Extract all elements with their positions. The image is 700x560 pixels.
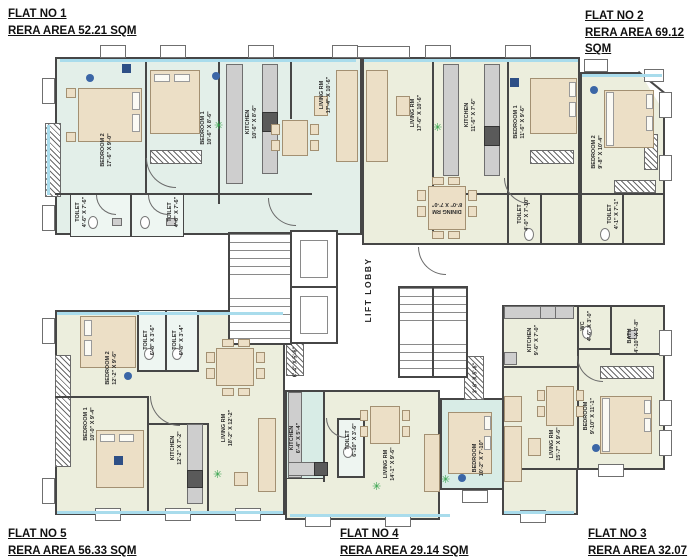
pillow: [646, 116, 653, 131]
room-label: BEDROOM 217'-6" X 9'-0": [100, 133, 114, 167]
window: [425, 45, 451, 58]
window-accent-strip: [60, 59, 356, 62]
wardrobe-hatch: [600, 366, 654, 379]
plant-icon: ✳: [372, 482, 381, 493]
chair: [432, 231, 444, 239]
dining-table: [216, 348, 254, 386]
flat-area: RERA AREA 56.33 SQM: [8, 543, 136, 560]
sink: [540, 306, 556, 319]
room-label: BEDROOM9'-10" X 11'-1": [583, 398, 597, 434]
room-label: BATH4'-10" X 3'-8": [627, 319, 641, 353]
wall: [577, 366, 579, 470]
flat-4-label: FLAT NO 4 RERA AREA 29.14 SQM: [340, 526, 468, 559]
pillow: [84, 320, 92, 336]
toilet-fixture: [88, 216, 98, 229]
wall: [610, 353, 665, 355]
toilet-fixture: [140, 216, 150, 229]
flat-area: RERA AREA 52.21 SQM: [8, 23, 136, 40]
chair: [537, 390, 545, 401]
sofa: [366, 70, 388, 162]
pillow: [569, 102, 576, 117]
door-arc: [418, 247, 446, 275]
floor-plan: ✳ ✳ ✳ ✳ ✳ BEDROOM 217'-6" X 9'-0"BEDROOM…: [0, 0, 700, 560]
window: [584, 59, 608, 72]
flat-3-label: FLAT NO 3 RERA AREA 32.07 SQM: [588, 526, 700, 560]
window: [505, 45, 531, 58]
chair: [360, 410, 368, 421]
wall: [540, 193, 542, 245]
stove: [484, 126, 500, 146]
sofa: [504, 426, 522, 482]
chair: [402, 410, 410, 421]
window-accent-strip: [364, 59, 578, 62]
pillow: [569, 82, 576, 97]
window: [659, 430, 672, 456]
window: [100, 45, 126, 58]
stove: [187, 470, 203, 488]
room-label: KITCHEN9'-6" X 7'-0": [527, 325, 541, 355]
sink: [112, 218, 122, 226]
refrigerator: [504, 352, 517, 365]
pillow: [84, 340, 92, 356]
room-label: BEDROOM 212'-2" X 9'-6": [105, 351, 119, 385]
sofa: [258, 418, 276, 492]
wall: [147, 396, 149, 515]
balcony-hatch: [55, 355, 71, 467]
chair: [222, 388, 234, 396]
coffee-table: [528, 438, 541, 456]
room-label: TOILET4'-6" X 7'-6": [75, 197, 89, 227]
ceiling-fan-dot: [86, 74, 94, 82]
armchair: [504, 396, 522, 422]
room-label: LIVING RM14'-1" X 9'-6": [383, 447, 397, 481]
window: [160, 45, 186, 58]
pillow: [154, 74, 170, 82]
chair: [432, 177, 444, 185]
wall: [130, 193, 132, 237]
sofa: [424, 434, 440, 492]
coffee-table: [396, 96, 410, 116]
wardrobe-hatch: [530, 150, 574, 164]
window: [659, 330, 672, 356]
kitchen-counter: [187, 424, 203, 504]
ac-unit: [122, 64, 131, 73]
wall: [55, 396, 149, 398]
ceiling-fan-dot: [124, 372, 132, 380]
window-accent-strip: [290, 514, 450, 517]
flat-area: RERA AREA 32.07 SQM: [588, 543, 700, 560]
plant-icon: ✳: [441, 475, 450, 486]
wall: [145, 57, 147, 195]
window: [659, 400, 672, 426]
window-accent-strip: [57, 312, 283, 315]
kitchen-counter: [443, 64, 459, 176]
room-label: TOILET6'-10" X 3'-6": [345, 423, 359, 457]
lift-car: [300, 240, 328, 278]
chair: [206, 368, 215, 379]
kitchen-counter: [504, 306, 574, 319]
flat-area: RERA AREA 29.14 SQM: [340, 543, 468, 560]
chair: [468, 190, 477, 201]
lift-car: [300, 296, 328, 334]
wall: [197, 310, 199, 372]
chair: [468, 206, 477, 217]
wall: [502, 366, 579, 368]
window-accent-strip: [57, 511, 283, 514]
window: [659, 155, 672, 181]
room-label: KITCHEN10'-6" X 8'-6": [245, 105, 259, 139]
pillow: [174, 74, 190, 82]
plant-icon: ✳: [433, 123, 442, 134]
flat-name: FLAT NO 3: [588, 526, 700, 543]
pillow: [132, 92, 140, 110]
wall: [137, 310, 139, 372]
chair: [417, 190, 426, 201]
window: [42, 478, 55, 504]
chair: [238, 339, 250, 347]
wall: [290, 57, 292, 119]
room-label: TOILET6'-8" X 3'-4": [172, 325, 186, 355]
ac-unit: [510, 78, 519, 87]
room-label: KITCHEN12'-2" X 7'-2": [170, 431, 184, 465]
chair: [537, 406, 545, 417]
pillow: [100, 434, 115, 442]
toilet-fixture: [600, 228, 610, 241]
pillow: [644, 400, 651, 414]
pillow: [644, 418, 651, 432]
wall: [432, 288, 434, 376]
kitchen-counter: [226, 64, 243, 184]
window: [42, 78, 55, 104]
chair: [448, 177, 460, 185]
wall: [507, 57, 509, 245]
wall: [580, 72, 582, 245]
window: [42, 318, 55, 344]
wall: [622, 193, 624, 245]
wardrobe-hatch: [614, 180, 656, 193]
flat-name: FLAT NO 1: [8, 6, 136, 23]
room-label: BEDROOM 29'-8" X 10'-4": [591, 135, 605, 169]
room-label: TOILET4'-0" X 7'-10": [517, 197, 531, 231]
flat-area: RERA AREA 69.12 SQM: [585, 25, 700, 58]
flat-5-label: FLAT NO 5 RERA AREA 56.33 SQM: [8, 526, 136, 559]
room-label: BEDROOM10'-2" X 7'-10": [472, 440, 486, 477]
ceiling-fan-dot: [592, 444, 600, 452]
chair: [222, 339, 234, 347]
room-label: WC4'-6" X 3'-0": [580, 311, 594, 341]
wall: [55, 193, 312, 195]
flat-2-label: FLAT NO 2 RERA AREA 69.12 SQM: [585, 8, 700, 58]
duct-outline: [352, 46, 410, 58]
dining-table: [282, 120, 308, 156]
room-label: KITCHEN6'-4" X 5'-4": [289, 423, 303, 453]
wall: [165, 310, 167, 372]
window: [659, 92, 672, 118]
chair: [402, 426, 410, 437]
dining-table: [546, 386, 574, 426]
room-label: LIVING RM17'-4" X 10'-6": [319, 77, 333, 114]
lift-lobby-label: LIFT LOBBY: [363, 257, 373, 322]
room-label: LIVING RM17'-6" X 10'-6": [410, 95, 424, 132]
stair-landing: [230, 281, 290, 293]
ac-unit: [114, 456, 123, 465]
sofa: [336, 70, 358, 162]
window: [248, 45, 274, 58]
room-label: LIVING RM15'-7" X 9'-6": [549, 427, 563, 461]
window-accent-strip: [504, 511, 574, 514]
room-label: BEDROOM 110'-0" X 9'-4": [83, 407, 97, 441]
pillow: [132, 114, 140, 132]
wall: [577, 348, 612, 350]
window: [42, 205, 55, 231]
window: [462, 490, 488, 503]
pillow: [646, 94, 653, 109]
dining-table: [370, 406, 400, 444]
ceiling-fan-dot: [212, 72, 220, 80]
chair: [238, 388, 250, 396]
window: [95, 508, 121, 521]
chair: [310, 124, 319, 135]
room-label: BEDROOM 110'-6" X 8'-6": [200, 111, 214, 145]
chair: [256, 368, 265, 379]
room-label: TOILET4'-6" X 7'-6": [167, 197, 181, 227]
room-label: TOILET6'-8" X 3'-6": [143, 325, 157, 355]
window: [165, 508, 191, 521]
chair: [310, 140, 319, 151]
chair: [448, 231, 460, 239]
window: [598, 464, 624, 477]
wall: [207, 423, 209, 515]
nightstand: [66, 88, 76, 98]
chair: [256, 352, 265, 363]
flat-name: FLAT NO 2: [585, 8, 700, 25]
nightstand: [66, 132, 76, 142]
chair: [206, 352, 215, 363]
coffee-table: [234, 472, 248, 486]
room-label: LIVING RM18'-2" X 12'-2": [221, 410, 235, 447]
pillow: [119, 434, 134, 442]
window: [332, 45, 358, 58]
window: [235, 508, 261, 521]
pillow: [484, 416, 491, 430]
bed-runner: [606, 92, 614, 146]
flat-name: FLAT NO 5: [8, 526, 136, 543]
window-accent-strip: [47, 125, 50, 195]
room-label: BEDROOM 111'-6" X 9'-6": [513, 105, 527, 138]
chair: [417, 206, 426, 217]
ceiling-fan-dot: [458, 474, 466, 482]
plant-icon: ✳: [213, 470, 222, 481]
chair: [271, 140, 280, 151]
room-label: KITCHEN11'-6" X 7'-6": [464, 98, 478, 131]
wall: [432, 193, 665, 195]
wall: [137, 370, 199, 372]
room-label: DINING RM8'-0" X 7'-0": [432, 200, 462, 214]
flat-1-label: FLAT NO 1 RERA AREA 52.21 SQM: [8, 6, 136, 39]
chair: [271, 124, 280, 135]
room-label: 6'-4" X 5'-6": [293, 347, 300, 377]
room-label: TOILET4'-1" X 7'-1": [607, 199, 621, 229]
room-label: 3'-6" X 5'-6": [473, 363, 480, 393]
stove: [314, 462, 328, 476]
chair: [360, 426, 368, 437]
window-accent-strip: [582, 74, 662, 77]
plant-icon: ✳: [214, 121, 223, 132]
bed-runner: [602, 398, 610, 452]
flat-name: FLAT NO 4: [340, 526, 468, 543]
ceiling-fan-dot: [590, 86, 598, 94]
kitchen-counter: [484, 64, 500, 176]
